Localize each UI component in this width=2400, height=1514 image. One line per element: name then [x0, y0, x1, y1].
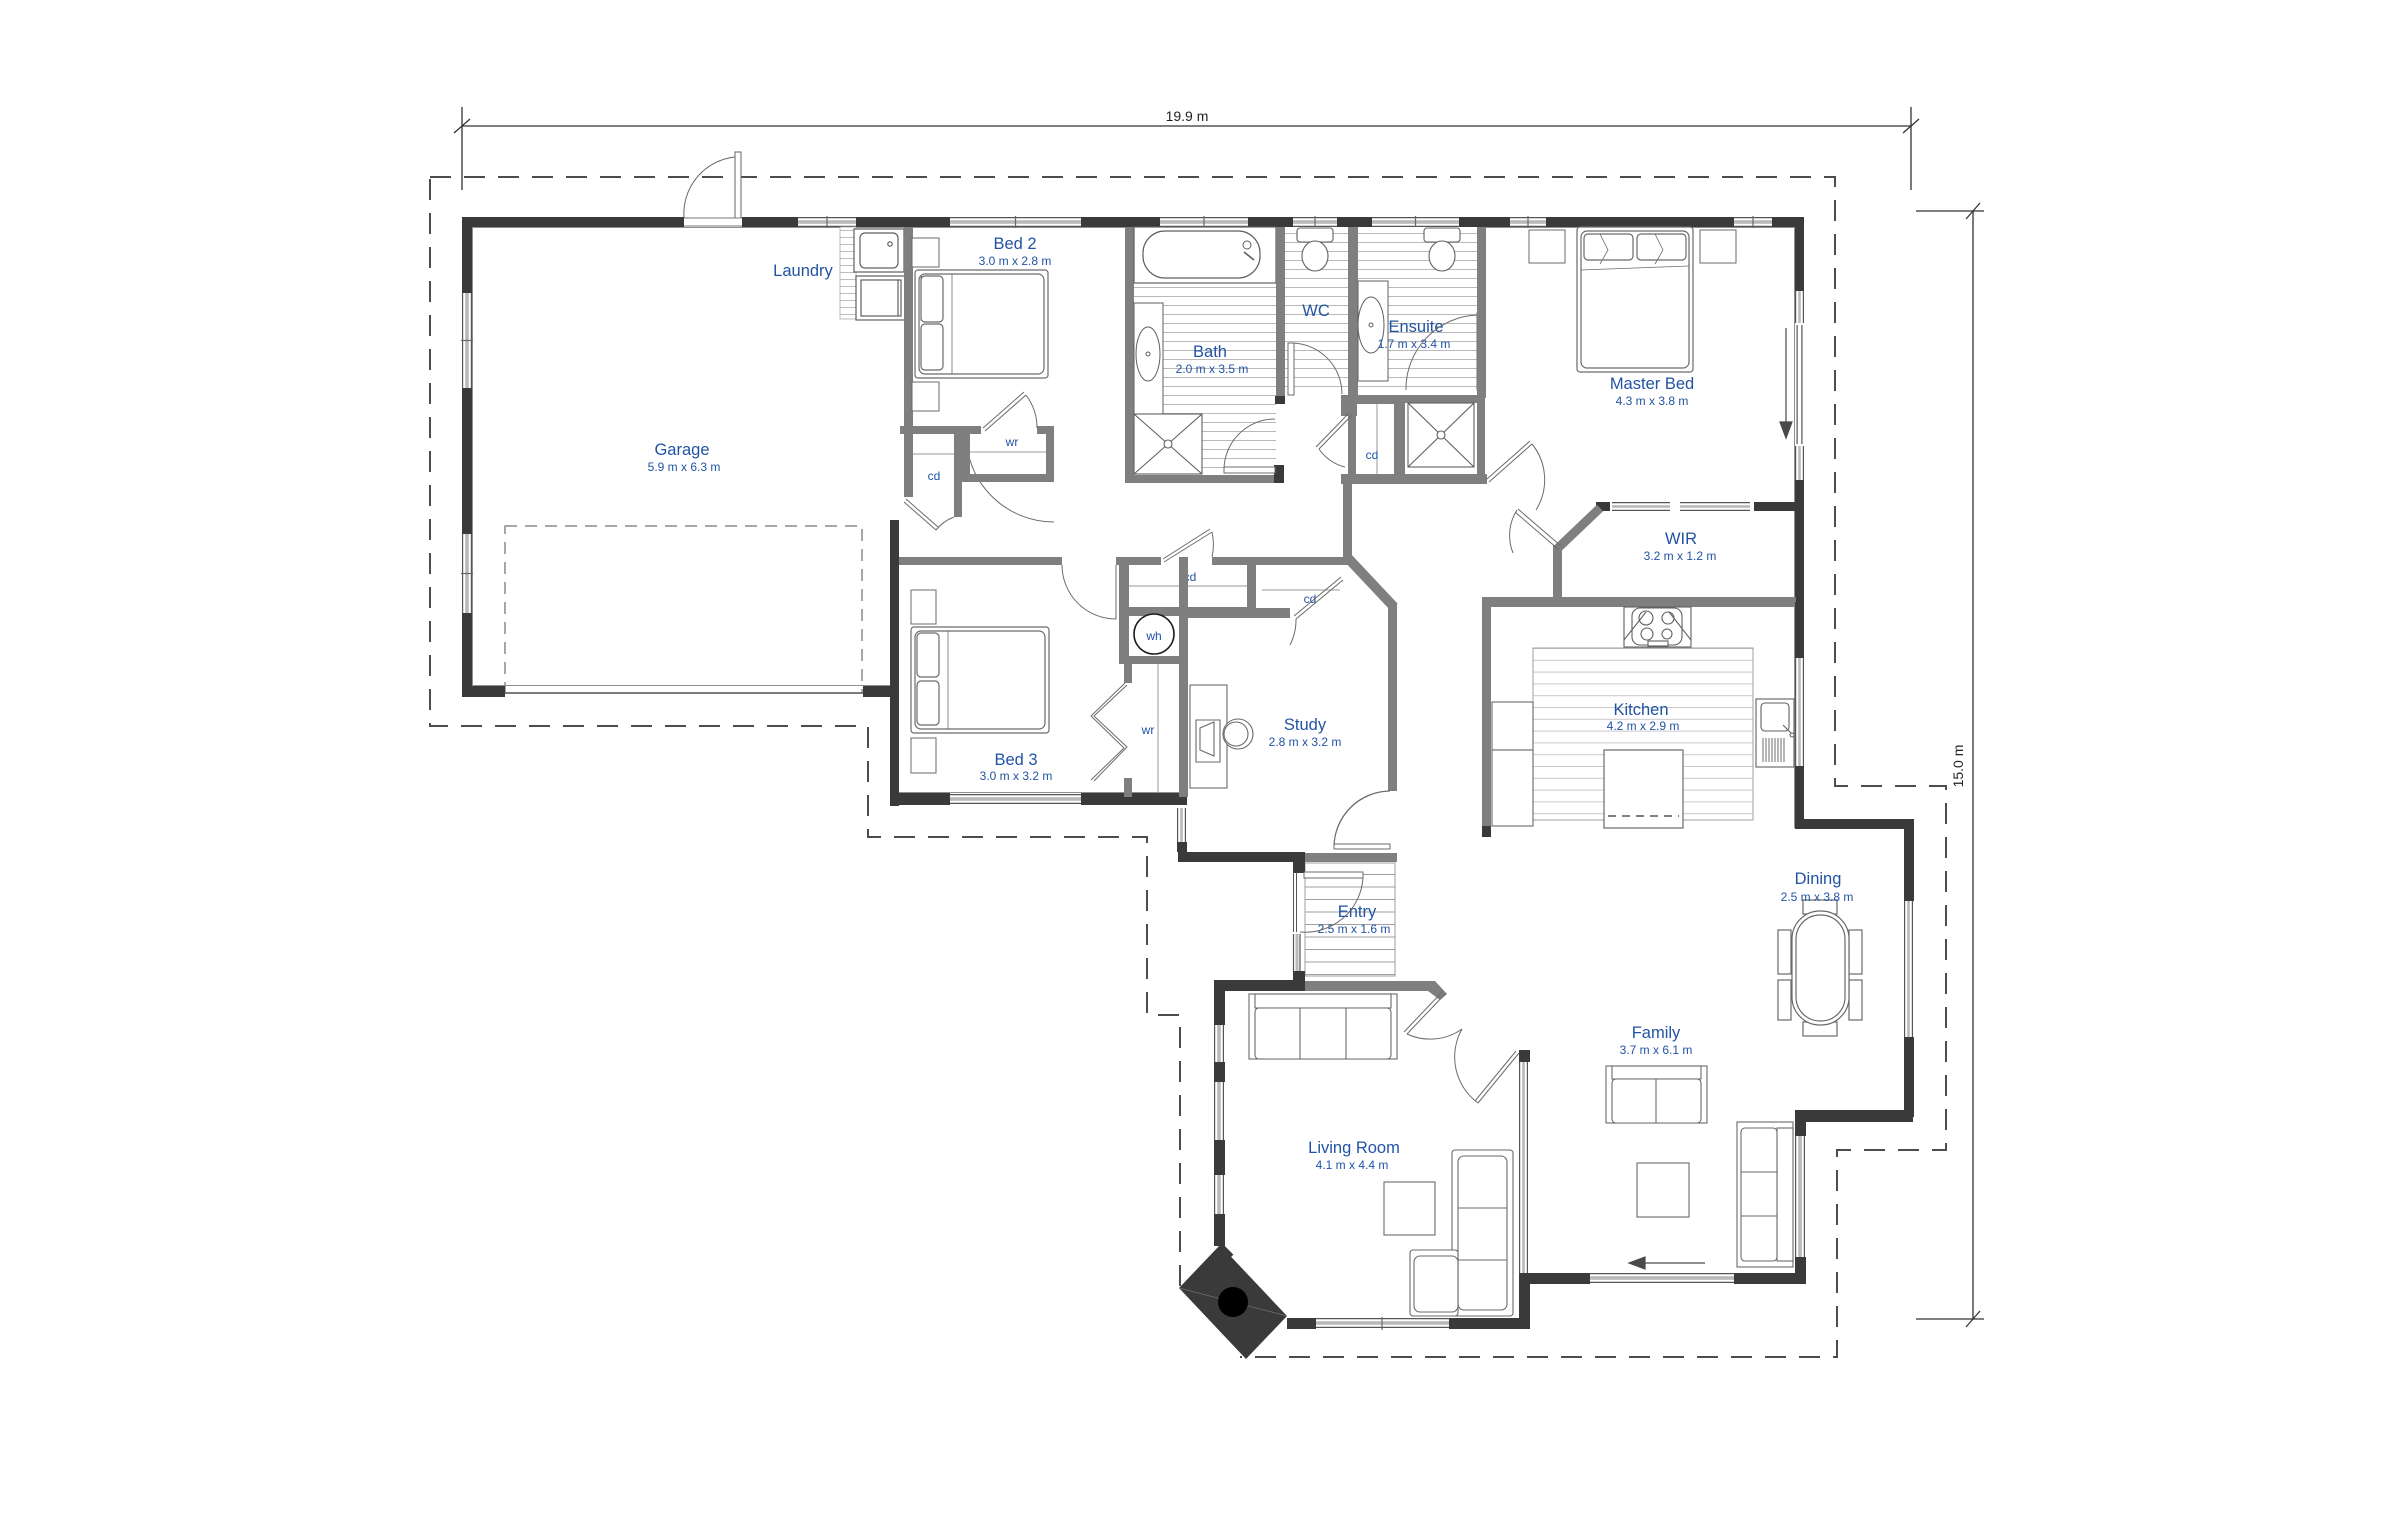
- svg-text:wr: wr: [1005, 435, 1019, 449]
- svg-text:Ensuite: Ensuite: [1388, 318, 1443, 336]
- svg-text:Bath: Bath: [1193, 343, 1227, 361]
- svg-text:Entry: Entry: [1338, 903, 1377, 921]
- svg-text:WIR: WIR: [1665, 530, 1697, 548]
- svg-text:cd: cd: [1366, 448, 1379, 462]
- svg-text:Study: Study: [1284, 716, 1327, 734]
- svg-text:cd: cd: [928, 469, 941, 483]
- svg-text:2.5 m x 1.6 m: 2.5 m x 1.6 m: [1318, 922, 1391, 936]
- svg-text:3.0 m x 2.8 m: 3.0 m x 2.8 m: [979, 254, 1052, 268]
- svg-text:Kitchen: Kitchen: [1613, 701, 1668, 719]
- svg-text:1.7 m x 3.4 m: 1.7 m x 3.4 m: [1378, 337, 1451, 351]
- svg-text:Living Room: Living Room: [1308, 1139, 1400, 1157]
- svg-text:Bed 2: Bed 2: [993, 235, 1036, 253]
- svg-text:wr: wr: [1141, 723, 1155, 737]
- svg-text:5.9 m x 6.3 m: 5.9 m x 6.3 m: [648, 460, 721, 474]
- svg-text:3.7 m x 6.1 m: 3.7 m x 6.1 m: [1620, 1043, 1693, 1057]
- svg-text:4.3 m x 3.8 m: 4.3 m x 3.8 m: [1616, 394, 1689, 408]
- svg-text:Family: Family: [1632, 1024, 1681, 1042]
- svg-text:Laundry: Laundry: [773, 262, 833, 280]
- svg-text:WC: WC: [1302, 302, 1330, 320]
- svg-text:2.0 m x 3.5 m: 2.0 m x 3.5 m: [1176, 362, 1249, 376]
- svg-text:Dining: Dining: [1795, 870, 1842, 888]
- svg-text:3.0 m x 3.2 m: 3.0 m x 3.2 m: [980, 769, 1053, 783]
- svg-text:19.9 m: 19.9 m: [1166, 108, 1209, 124]
- svg-text:wh: wh: [1145, 629, 1161, 643]
- svg-text:Bed 3: Bed 3: [994, 751, 1037, 769]
- svg-text:15.0 m: 15.0 m: [1950, 745, 1966, 788]
- svg-text:Master Bed: Master Bed: [1610, 375, 1694, 393]
- svg-text:2.8 m x 3.2 m: 2.8 m x 3.2 m: [1269, 735, 1342, 749]
- svg-text:2.5 m x 3.8 m: 2.5 m x 3.8 m: [1781, 890, 1854, 904]
- svg-text:4.1 m x 4.4 m: 4.1 m x 4.4 m: [1316, 1158, 1389, 1172]
- svg-text:Garage: Garage: [654, 441, 709, 459]
- svg-text:3.2 m x 1.2 m: 3.2 m x 1.2 m: [1644, 549, 1717, 563]
- svg-text:4.2 m x 2.9 m: 4.2 m x 2.9 m: [1607, 719, 1680, 733]
